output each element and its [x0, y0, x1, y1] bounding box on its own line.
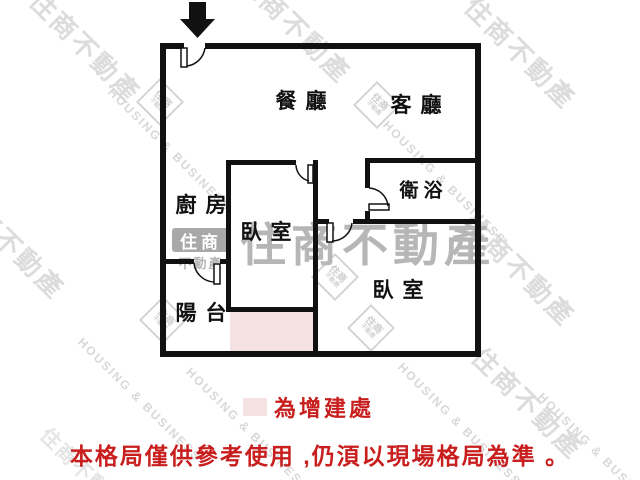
wall-segment: [226, 162, 231, 312]
balcony-door-leaf: [214, 264, 220, 284]
room-label-dining: 餐廳: [267, 85, 336, 115]
wall-segment: [160, 351, 481, 357]
legend: 為增建處: [243, 391, 374, 423]
bedroom-right-door-arc: [332, 223, 352, 241]
room-label-living: 客廳: [382, 89, 451, 119]
bedroom-right-door-leaf: [327, 223, 333, 242]
legend-label: 為增建處: [274, 391, 374, 423]
entrance-door-leaf: [181, 48, 187, 67]
wall-segment: [160, 43, 166, 357]
wall-segment: [475, 43, 481, 357]
room-label-bedroom-middle: 臥室: [232, 216, 301, 246]
wall-segment: [365, 158, 370, 188]
wall-segment: [353, 219, 481, 224]
disclaimer-text: 本格局僅供參考使用 ,仍湏以現場格局為準 。: [60, 437, 580, 471]
floor-plan-image: 住商不動產 住商不動產 住商不動產 住商不動產 住商不動產 住商不動產 住商不動…: [0, 0, 640, 480]
wall-segment: [365, 158, 481, 163]
room-label-bathroom: 衛浴: [394, 176, 447, 203]
balcony-door-arc: [194, 263, 214, 282]
wall-segment: [205, 43, 481, 49]
wall-segment: [313, 160, 318, 357]
wall-segment: [226, 160, 296, 165]
wall-segment: [226, 307, 318, 312]
room-label-kitchen: 廚房: [167, 189, 236, 219]
room-label-bedroom-right: 臥室: [364, 274, 433, 304]
addition-area: [230, 312, 316, 351]
entrance-arrow-icon: [180, 2, 215, 38]
entrance-door-arc: [187, 48, 205, 66]
bedroom-middle-door-arc: [296, 165, 309, 181]
legend-addition-swatch: [243, 398, 267, 416]
room-label-balcony: 陽台: [167, 297, 236, 327]
wall-segment: [220, 259, 226, 264]
wall-segment: [160, 259, 194, 264]
bathroom-door-leaf: [369, 204, 389, 210]
